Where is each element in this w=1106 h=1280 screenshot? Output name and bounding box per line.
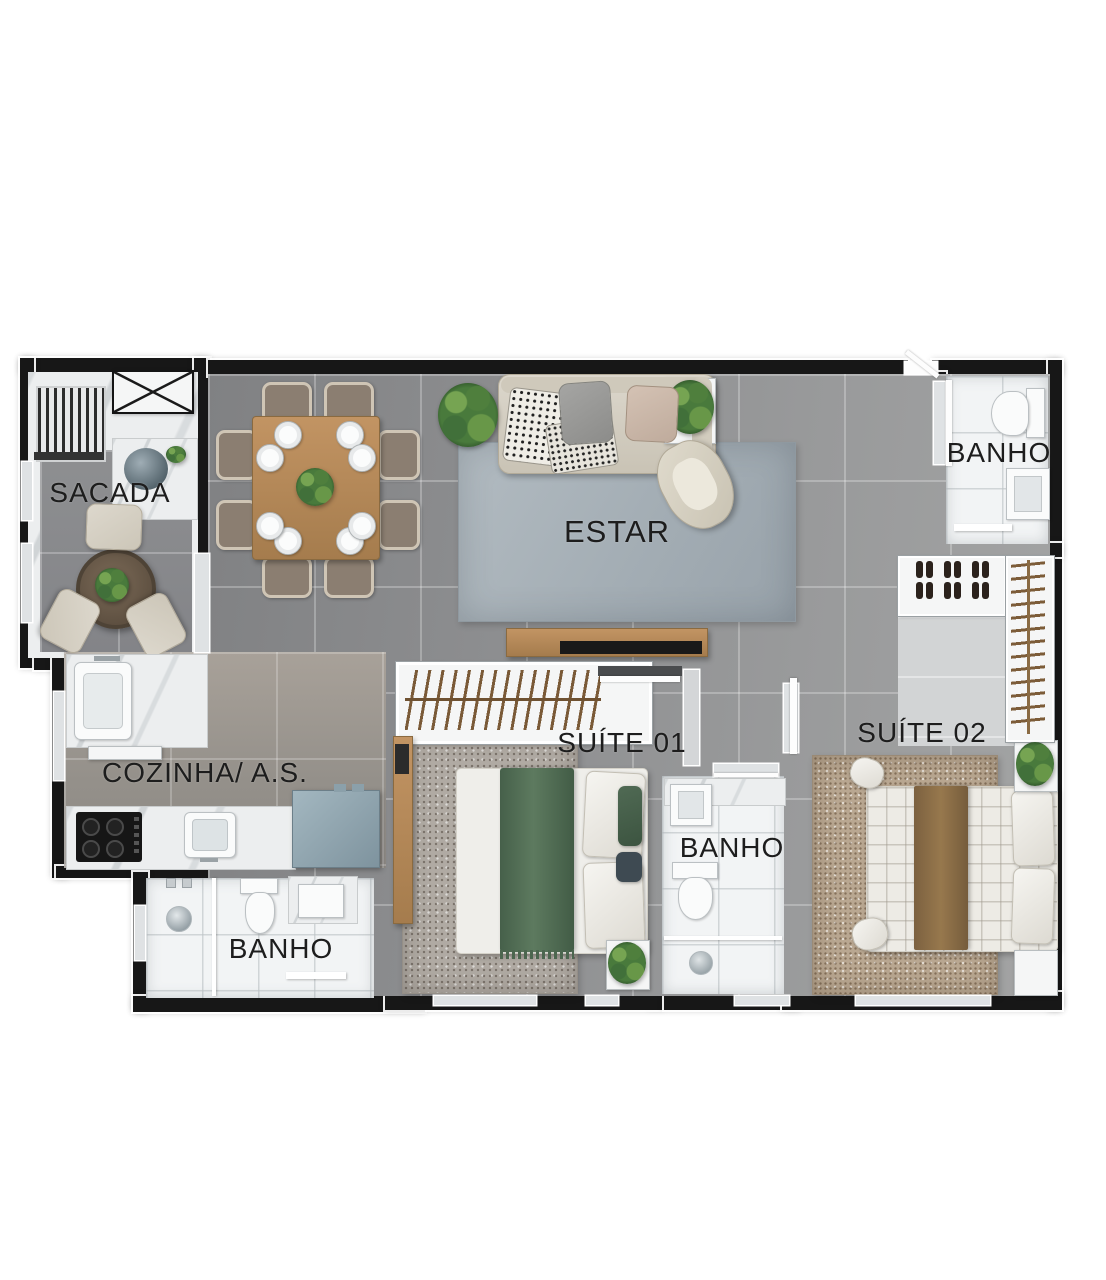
window-sill (735, 996, 789, 1005)
suite1-accent-pillow-dark (616, 852, 642, 882)
wall (133, 996, 425, 1012)
sacada-chair (85, 503, 143, 551)
closet-plant (1016, 742, 1054, 786)
room-label-cozinha: COZINHA/ A.S. (102, 757, 308, 789)
room-label-banho-bottom-left: BANHO (229, 933, 334, 965)
towel-on-floor (954, 524, 1012, 531)
suite1-plant (608, 942, 646, 984)
shower-glass (664, 936, 782, 940)
floor-plant-living (438, 383, 498, 447)
window-sill (586, 996, 618, 1005)
window-sill (22, 544, 32, 622)
toilet-bowl (245, 892, 275, 934)
shaft-x-icon (114, 372, 192, 412)
suite2-nightstand (1014, 950, 1058, 996)
technical-shaft (112, 370, 194, 414)
burner (82, 818, 100, 836)
closet-rod (1027, 560, 1030, 734)
suite2-pillow (1011, 789, 1056, 866)
window-sill (135, 906, 145, 960)
suite1-lamp (395, 744, 409, 774)
shoes-pair (970, 582, 990, 599)
shower-drain (166, 906, 192, 932)
ac-condenser-bench (36, 386, 106, 462)
room-label-suite1: SUÍTE 01 (557, 727, 686, 759)
shoes-pair (914, 582, 934, 599)
sofa-cushion-gray (558, 380, 614, 445)
burner (106, 840, 124, 858)
place-setting (256, 512, 284, 540)
kitchen-faucet (200, 858, 218, 862)
toilet-bowl (678, 877, 713, 920)
bathroom-sink (298, 884, 344, 918)
laundry-tank-basin (83, 673, 123, 729)
burner (106, 818, 124, 836)
sink-basin (678, 791, 704, 819)
suite1-accent-pillow-green (618, 786, 642, 846)
place-setting (256, 444, 284, 472)
place-setting (274, 421, 302, 449)
room-label-banho-top-right: BANHO (947, 437, 1052, 469)
shoe-rack (898, 556, 1006, 616)
door-opening (934, 382, 945, 464)
shoes-pair (914, 561, 934, 578)
shower-valves (182, 878, 192, 888)
shoes-pair (942, 582, 962, 599)
room-label-estar: ESTAR (564, 514, 670, 550)
cooktop-knobs (134, 817, 139, 857)
suite1-sliding-door (598, 666, 682, 676)
toilet-bowl (991, 391, 1029, 436)
banho-door-threshold (714, 773, 778, 777)
shower-glass (212, 878, 216, 996)
dining-chair (378, 500, 420, 550)
suite1-throw-fringe (500, 950, 574, 959)
suite2-pillow (1011, 867, 1056, 944)
decor-sprig-plant (166, 446, 186, 463)
shoe-row (900, 582, 1004, 599)
suite1-green-throw (500, 768, 574, 952)
window-sill (856, 996, 990, 1005)
tv (560, 641, 702, 654)
sofa-cushion-blush (625, 385, 680, 444)
refrigerator-handle (334, 784, 346, 792)
shoes-pair (970, 561, 990, 578)
suite2-brown-throw (914, 786, 968, 950)
window-sill (54, 692, 64, 780)
towel-on-floor (286, 972, 346, 979)
dining-chair (324, 556, 374, 598)
closet-hanging-rail (1006, 556, 1054, 742)
dining-chair (378, 430, 420, 480)
sacada-table-plant (95, 568, 129, 602)
room-label-suite2: SUÍTE 02 (857, 717, 986, 749)
window-sill (22, 462, 32, 520)
cooktop (76, 812, 142, 862)
burner (82, 840, 100, 858)
place-setting (348, 444, 376, 472)
shower-valves (166, 878, 176, 888)
suite2-door-leaf (790, 678, 797, 754)
room-label-sacada: SACADA (49, 477, 170, 509)
ac-condenser-bar (34, 452, 104, 460)
sacada-door-sill (195, 554, 209, 652)
refrigerator-handle (352, 784, 364, 792)
shoes-pair (942, 561, 962, 578)
window-sill (434, 996, 536, 1005)
place-setting (348, 512, 376, 540)
dining-centerpiece-plant (296, 468, 334, 506)
laundry-faucet (94, 656, 120, 661)
dining-chair (262, 556, 312, 598)
suite1-door-threshold (600, 676, 680, 682)
closet-rod (405, 698, 601, 701)
shoe-row (900, 561, 1004, 578)
room-label-banho-middle: BANHO (680, 832, 785, 864)
floorplan-render: SACADA ESTAR COZINHA/ A.S. SUÍTE 01 SUÍT… (0, 0, 1106, 1280)
shower-drain (689, 951, 713, 975)
sink-basin (1014, 476, 1042, 512)
kitchen-sink-basin (192, 819, 228, 851)
refrigerator (292, 790, 380, 868)
